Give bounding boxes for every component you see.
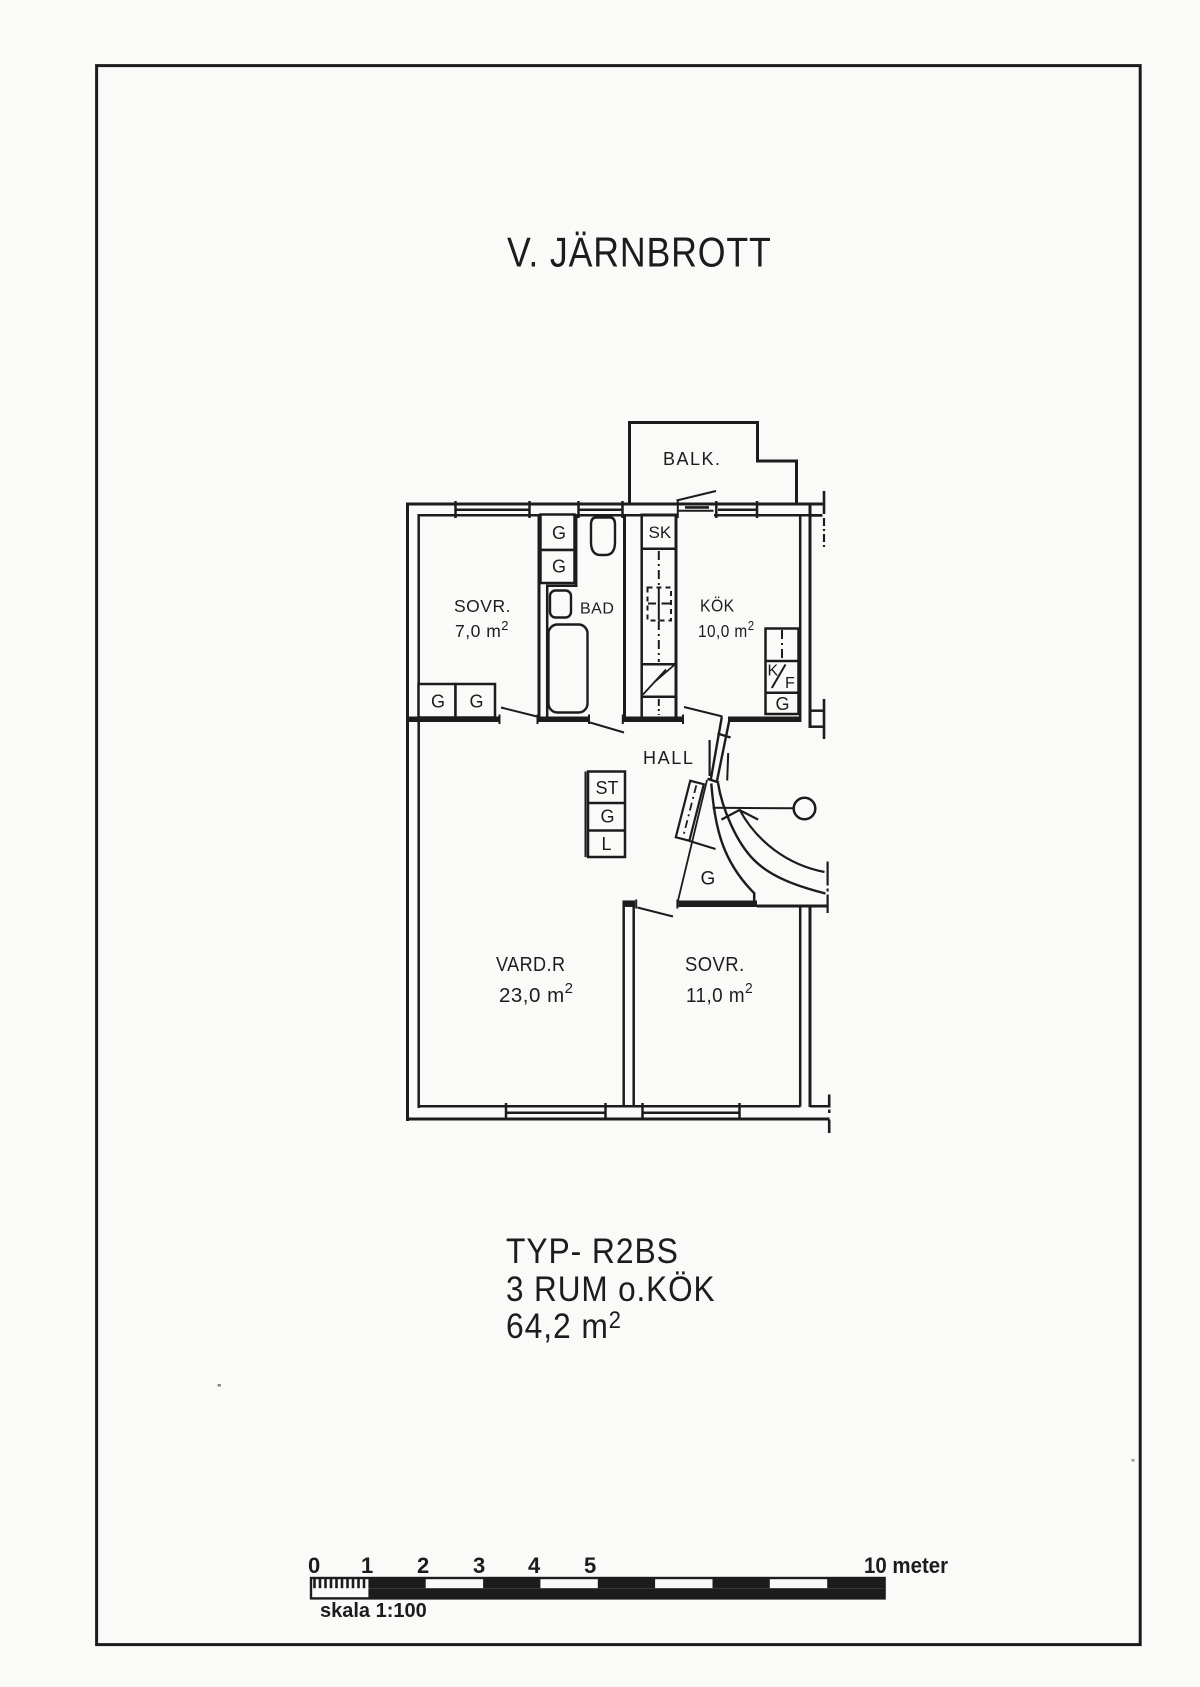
svg-text:10 meter: 10 meter <box>864 1553 948 1578</box>
svg-text:SOVR.: SOVR. <box>454 596 511 616</box>
svg-text:11,0 m2: 11,0 m2 <box>686 981 753 1008</box>
svg-text:2: 2 <box>417 1553 429 1578</box>
svg-text:V. JÄRNBROTT: V. JÄRNBROTT <box>507 230 772 276</box>
svg-text:7,0 m2: 7,0 m2 <box>455 618 509 641</box>
svg-text:64,2 m2: 64,2 m2 <box>506 1306 622 1346</box>
svg-text:5: 5 <box>584 1553 596 1578</box>
svg-text:ST: ST <box>596 778 619 798</box>
svg-text:4: 4 <box>528 1553 541 1578</box>
svg-text:F: F <box>785 675 795 692</box>
svg-text:0: 0 <box>308 1553 320 1578</box>
svg-text:3 RUM o.KÖK: 3 RUM o.KÖK <box>506 1271 715 1310</box>
svg-text:G: G <box>552 557 566 577</box>
svg-text:10,0 m2: 10,0 m2 <box>698 618 754 641</box>
svg-text:KÖK: KÖK <box>700 596 735 616</box>
svg-text:L: L <box>602 834 612 854</box>
svg-text:SOVR.: SOVR. <box>685 953 745 976</box>
svg-text:G: G <box>431 692 445 712</box>
svg-text:1: 1 <box>361 1553 373 1578</box>
svg-text:G: G <box>552 523 566 543</box>
svg-text:3: 3 <box>473 1553 485 1578</box>
svg-text:K: K <box>768 663 779 680</box>
svg-text:SK: SK <box>649 523 672 542</box>
svg-text:BALK.: BALK. <box>663 449 722 469</box>
svg-text:VARD.R: VARD.R <box>496 954 565 976</box>
svg-text:TYP- R2BS: TYP- R2BS <box>506 1233 679 1272</box>
svg-text:23,0 m2: 23,0 m2 <box>499 980 574 1007</box>
svg-text:HALL: HALL <box>643 748 694 768</box>
svg-text:skala 1:100: skala 1:100 <box>320 1600 427 1622</box>
svg-text:G: G <box>701 869 716 890</box>
svg-text:G: G <box>601 807 615 827</box>
svg-text:BAD: BAD <box>580 601 614 618</box>
svg-text:G: G <box>470 692 484 712</box>
svg-text:G: G <box>776 694 790 714</box>
